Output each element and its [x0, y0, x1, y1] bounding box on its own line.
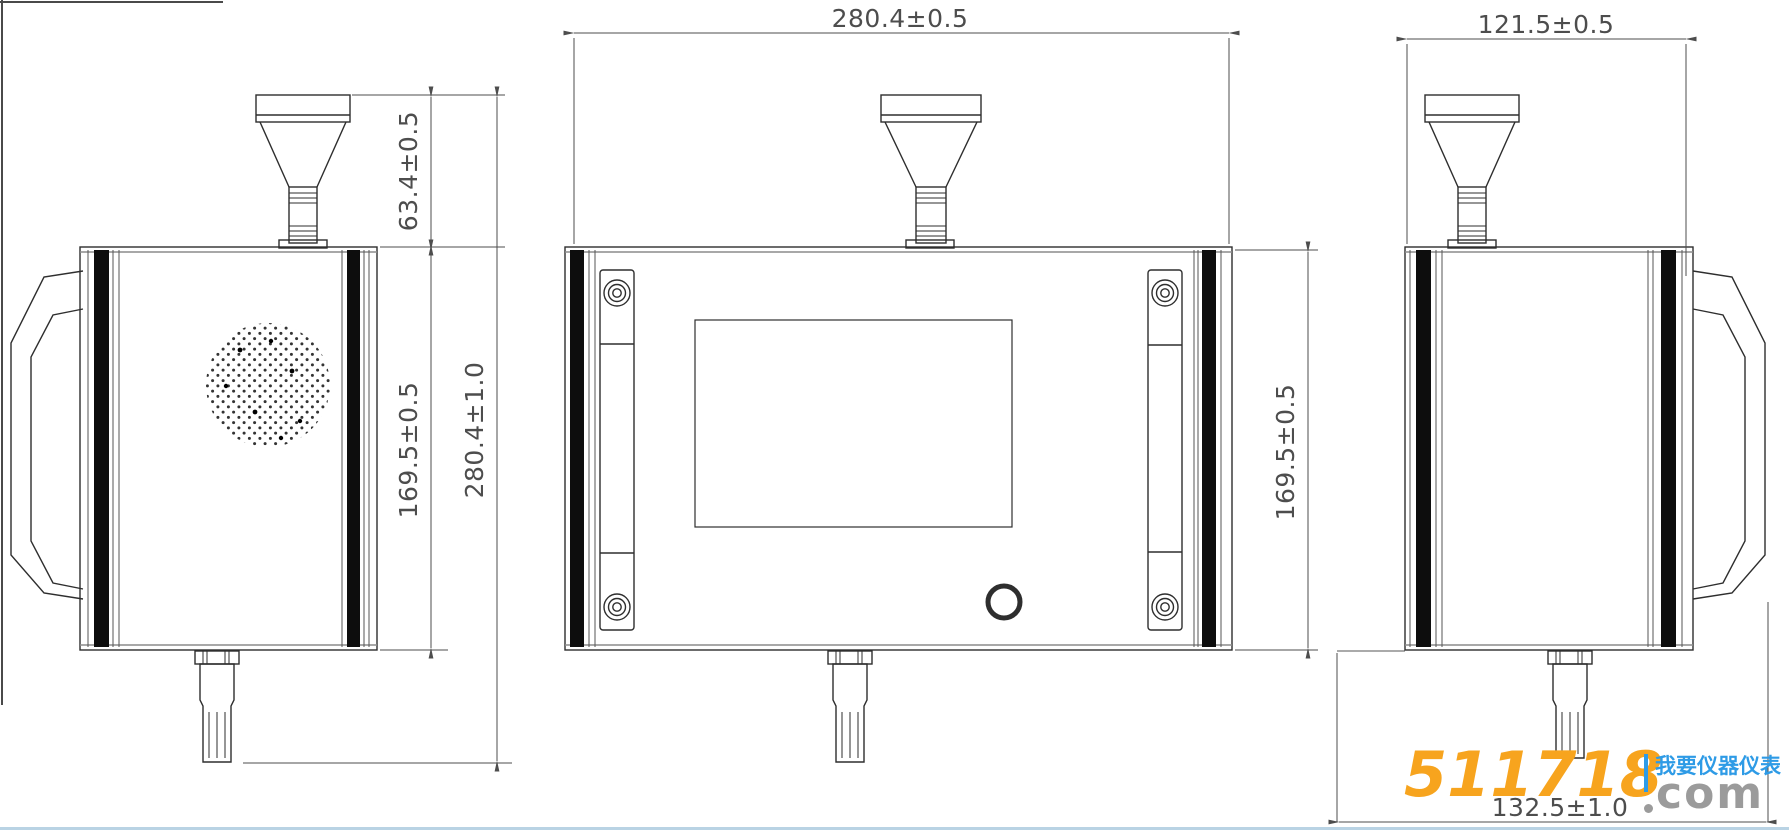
front-body: [565, 247, 1232, 650]
watermark-site-number: 511718: [1404, 744, 1663, 806]
probe-collar: [828, 651, 872, 664]
screw-icon: [609, 599, 626, 616]
drawing-sheet: 280.4±0.5 121.5±0.5 63.4±0.5 169.5±0.5 2…: [0, 0, 1789, 832]
probe-collar-lines: [203, 651, 229, 664]
right-side-view: [1337, 95, 1765, 758]
front-funnel: [881, 95, 981, 248]
engineering-drawing-canvas: 280.4±0.5 121.5±0.5 63.4±0.5 169.5±0.5 2…: [0, 0, 1789, 832]
funnel-neck: [289, 187, 317, 243]
right-handle-outer: [1693, 271, 1765, 599]
funnel-threads: [289, 193, 317, 236]
screw-icon: [1157, 599, 1174, 616]
dim-label-inlet-height: 63.4±0.5: [394, 111, 423, 231]
left-probe: [195, 651, 239, 762]
probe-collar-lines: [836, 651, 862, 664]
front-black-strip-right: [1202, 250, 1216, 647]
left-body: [80, 247, 377, 650]
right-body: [1405, 247, 1693, 650]
power-button: [988, 586, 1020, 618]
probe-collar: [1548, 651, 1592, 664]
dim-label-side-depth: 121.5±0.5: [1478, 10, 1615, 39]
funnel-neck: [1458, 187, 1486, 243]
vent-dot: [238, 348, 243, 353]
screw-icon: [609, 285, 626, 302]
funnel-cap: [1425, 95, 1519, 122]
left-black-strip-2: [347, 250, 360, 647]
vent-dot: [290, 369, 295, 374]
probe-collar: [195, 651, 239, 664]
right-handle-inner: [1693, 309, 1745, 589]
left-side-view: [11, 95, 377, 762]
watermark-dot-icon: [1644, 804, 1653, 813]
probe-slots: [842, 712, 858, 758]
right-funnel: [1425, 95, 1519, 248]
funnel-cap: [256, 95, 350, 122]
vent-dot: [279, 436, 283, 440]
vent-dot: [269, 339, 273, 343]
dimension-annotations: 280.4±0.5 121.5±0.5 63.4±0.5 169.5±0.5 2…: [243, 4, 1768, 822]
left-funnel: [256, 95, 350, 248]
front-probe: [828, 651, 872, 762]
screw-icon: [1161, 289, 1169, 297]
vent-dot: [253, 410, 258, 415]
right-black-strip-2: [1661, 250, 1676, 647]
display-screen: [695, 320, 1012, 527]
probe-slots: [209, 712, 225, 758]
funnel-cap: [881, 95, 981, 122]
funnel-neck: [916, 187, 946, 243]
front-black-strip-left: [570, 250, 584, 647]
screw-icon: [1161, 603, 1169, 611]
dim-label-total-height: 280.4±1.0: [460, 362, 489, 499]
front-left-rail: [600, 270, 634, 630]
screw-icon: [613, 289, 621, 297]
dim-label-front-width: 280.4±0.5: [832, 4, 969, 33]
watermark-site-tld: com: [1656, 772, 1764, 816]
funnel-threads: [1458, 193, 1486, 236]
probe-collar-lines: [1556, 651, 1582, 664]
vent-dot: [224, 384, 228, 388]
screw-icon: [1157, 285, 1174, 302]
funnel-cone: [1429, 122, 1515, 187]
watermark-divider: [1644, 754, 1648, 792]
front-view: [565, 95, 1232, 762]
right-black-strip-1: [1416, 250, 1431, 647]
watermark-logo: 511718 我要仪器仪表 com: [1398, 748, 1789, 828]
funnel-cone: [885, 122, 977, 187]
left-black-strip-1: [94, 250, 109, 647]
screw-icon: [613, 603, 621, 611]
dim-label-left-body-height: 169.5±0.5: [394, 382, 423, 519]
rail-plate: [600, 270, 634, 630]
funnel-cone: [260, 122, 346, 187]
dim-label-right-body-height: 169.5±0.5: [1271, 384, 1300, 521]
vent-dot: [298, 419, 302, 423]
left-handle-inner: [31, 309, 83, 589]
front-right-rail: [1148, 270, 1182, 630]
left-handle-outer: [11, 271, 83, 599]
funnel-threads: [916, 193, 946, 236]
rail-plate: [1148, 270, 1182, 630]
